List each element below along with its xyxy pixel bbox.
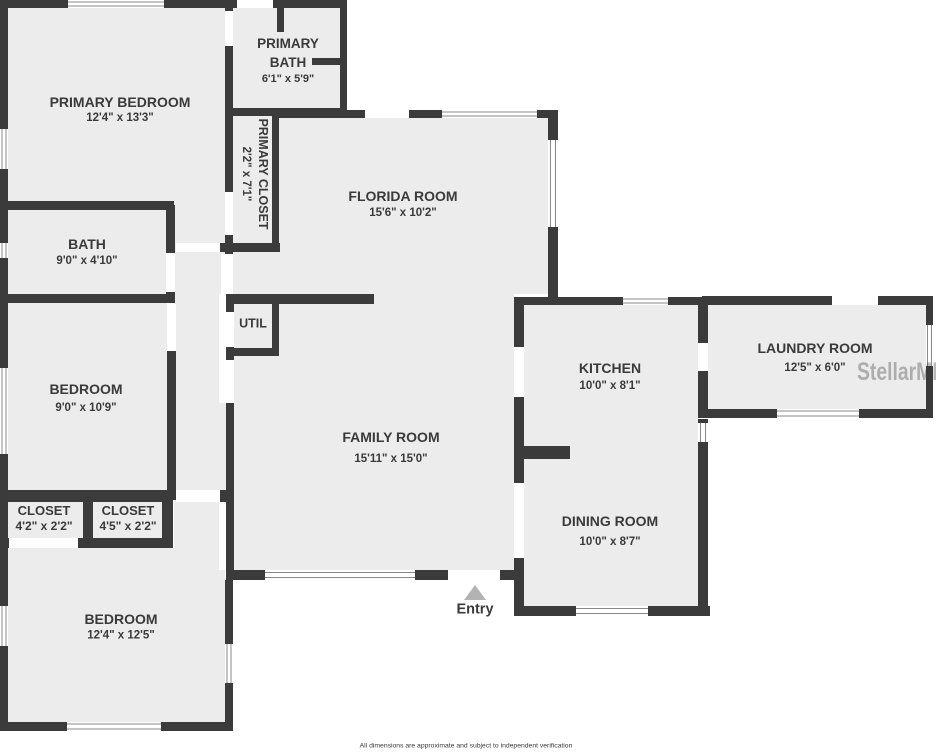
svg-text:PRIMARY: PRIMARY <box>257 36 319 51</box>
svg-text:BEDROOM: BEDROOM <box>49 381 122 397</box>
svg-text:12'4" x 12'5": 12'4" x 12'5" <box>87 630 155 642</box>
svg-text:StellarMLS: StellarMLS <box>857 358 936 386</box>
svg-text:12'5" x 6'0": 12'5" x 6'0" <box>784 362 845 374</box>
svg-text:4'5" x 2'2": 4'5" x 2'2" <box>99 519 156 533</box>
svg-text:FLORIDA ROOM: FLORIDA ROOM <box>348 188 457 204</box>
svg-text:LAUNDRY ROOM: LAUNDRY ROOM <box>757 340 872 356</box>
svg-text:CLOSET: CLOSET <box>18 503 71 518</box>
svg-text:Entry: Entry <box>456 602 493 618</box>
svg-text:All dimensions are approximate: All dimensions are approximate and subje… <box>360 743 573 750</box>
svg-text:BATH: BATH <box>68 236 106 252</box>
svg-text:CLOSET: CLOSET <box>102 503 155 518</box>
svg-text:10'0" x 8'7": 10'0" x 8'7" <box>579 536 640 548</box>
svg-text:PRIMARY CLOSET: PRIMARY CLOSET <box>256 118 270 229</box>
svg-text:2'2" x 7'1": 2'2" x 7'1" <box>240 147 252 202</box>
svg-text:15'6" x 10'2": 15'6" x 10'2" <box>369 207 437 219</box>
svg-text:BATH: BATH <box>270 55 307 70</box>
svg-text:DINING ROOM: DINING ROOM <box>562 513 658 529</box>
svg-text:UTIL: UTIL <box>239 317 267 331</box>
svg-text:FAMILY ROOM: FAMILY ROOM <box>342 429 439 445</box>
svg-text:12'4" x 13'3": 12'4" x 13'3" <box>86 112 154 124</box>
svg-text:6'1" x 5'9": 6'1" x 5'9" <box>262 73 314 85</box>
svg-text:9'0" x 10'9": 9'0" x 10'9" <box>55 402 116 414</box>
svg-text:BEDROOM: BEDROOM <box>84 611 157 627</box>
svg-text:KITCHEN: KITCHEN <box>579 360 641 376</box>
svg-text:15'11" x 15'0": 15'11" x 15'0" <box>354 453 427 465</box>
svg-text:PRIMARY BEDROOM: PRIMARY BEDROOM <box>50 94 191 110</box>
svg-text:4'2" x 2'2": 4'2" x 2'2" <box>15 519 72 533</box>
svg-text:9'0" x 4'10": 9'0" x 4'10" <box>56 255 117 267</box>
svg-text:10'0" x 8'1": 10'0" x 8'1" <box>579 380 640 392</box>
